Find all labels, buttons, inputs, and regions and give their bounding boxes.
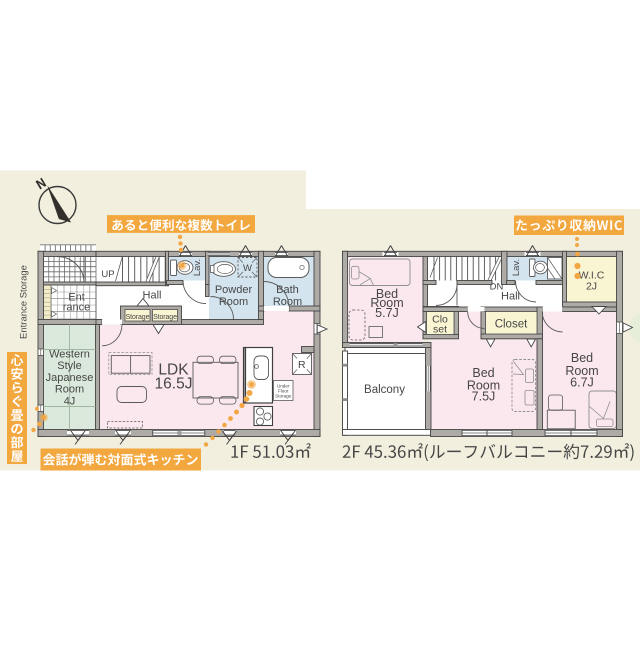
svg-text:4J: 4J [64,395,76,407]
svg-text:set: set [433,324,447,336]
svg-text:Entrance Storage: Entrance Storage [19,265,30,339]
svg-text:Storage: Storage [126,314,150,321]
svg-text:5.7J: 5.7J [375,306,399,320]
svg-text:Powder: Powder [215,284,253,296]
svg-text:Bath: Bath [276,284,299,296]
svg-text:Room: Room [219,296,248,308]
svg-text:Western: Western [49,349,90,361]
svg-text:Lav.: Lav. [511,259,522,276]
svg-text:6.7J: 6.7J [570,376,594,390]
svg-text:Style: Style [57,360,81,372]
svg-text:Storage: Storage [153,314,177,321]
svg-text:UP: UP [101,269,114,280]
svg-text:Room: Room [55,384,84,396]
svg-text:Bed: Bed [571,351,593,365]
svg-text:Balcony: Balcony [364,384,405,396]
svg-text:Lav.: Lav. [192,259,203,276]
svg-text:R: R [298,359,306,371]
svg-text:Closet: Closet [495,319,528,331]
svg-text:Hall: Hall [501,291,520,303]
svg-text:Storage: Storage [275,393,292,398]
svg-text:rance: rance [63,302,91,314]
svg-text:2J: 2J [586,281,597,293]
svg-text:Japanese: Japanese [46,372,94,384]
svg-text:7.5J: 7.5J [472,390,496,404]
svg-text:16.5J: 16.5J [155,376,193,393]
svg-text:Hall: Hall [143,290,162,302]
svg-text:W: W [243,263,252,274]
